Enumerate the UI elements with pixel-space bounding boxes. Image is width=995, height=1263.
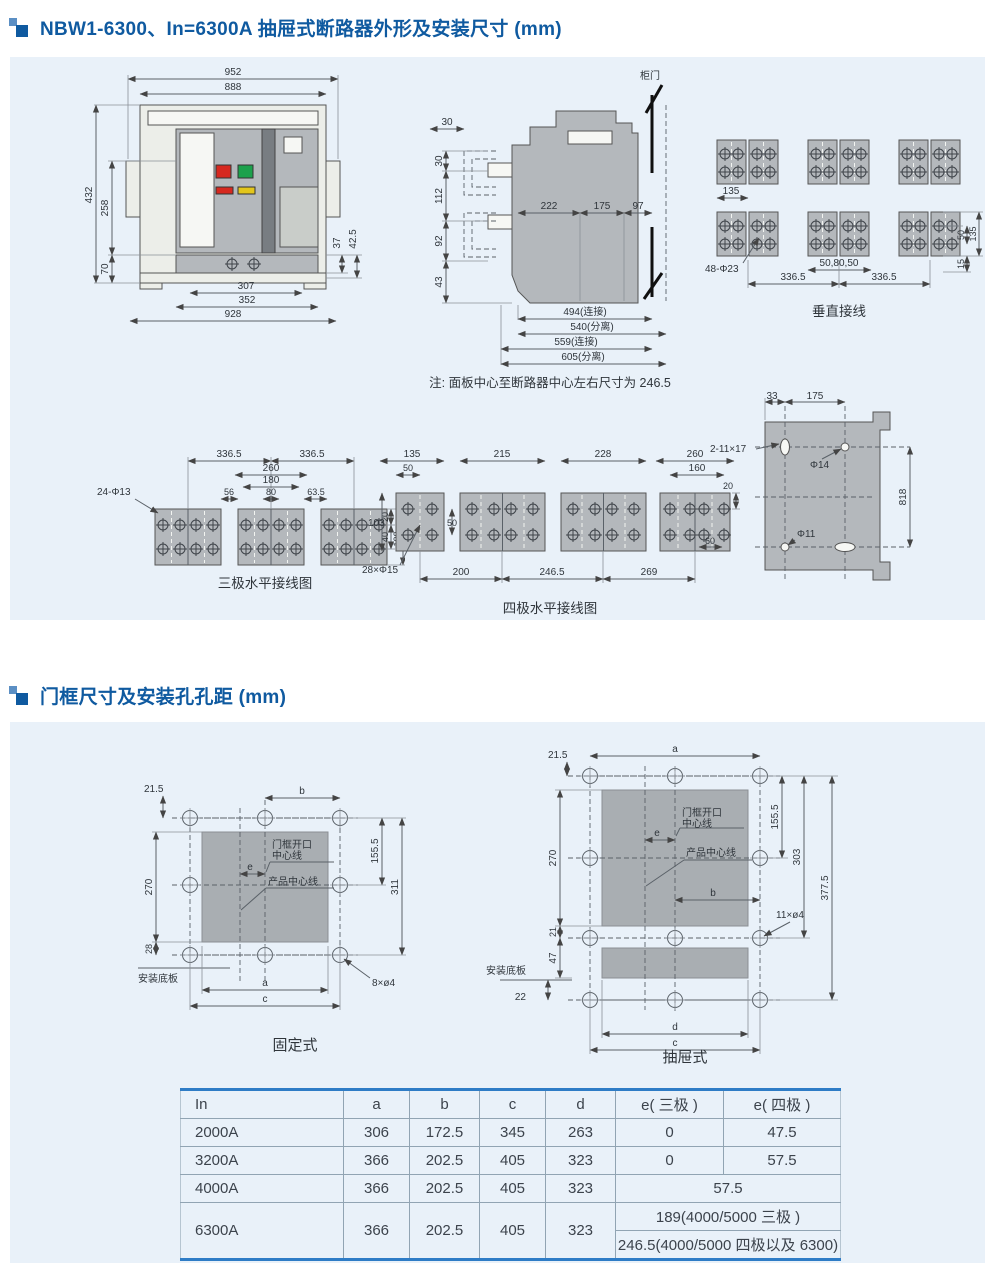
table-row: 4000A 366 202.5 405 323 57.5 (181, 1175, 841, 1203)
dim-label: 80 (266, 487, 276, 497)
table-row: 3200A 366 202.5 405 323 0 57.5 (181, 1147, 841, 1175)
dim-label: 540(分离) (570, 320, 613, 333)
catalog-page: NBW1-6300、In=6300A 抽屉式断路器外形及安装尺寸 (mm) (0, 0, 995, 1263)
dim-label: 228 (595, 449, 612, 460)
cell-b: 202.5 (410, 1175, 480, 1203)
dim-label: 97 (632, 201, 644, 212)
cell-a: 366 (344, 1203, 410, 1260)
dim-label: Φ11 (797, 529, 816, 540)
vertical-wiring-terminals (717, 140, 960, 256)
dim-label: a (262, 978, 268, 989)
cabinet-door-label: 柜门 (640, 69, 660, 82)
dim-label: 135 (404, 449, 421, 460)
fixed-type-drawing: 21.5 b 270 28 155.5 311 e a c 8×ø4 安装底板 … (130, 750, 470, 1060)
dim-label: 70 (100, 263, 111, 275)
dim-label: 175 (594, 201, 611, 212)
cell-a: 306 (344, 1119, 410, 1147)
breaker-front-body (126, 105, 340, 289)
dim-label: 260 (687, 449, 704, 460)
cell-e-four-pole: 246.5(4000/5000 四极以及 6300) (616, 1231, 841, 1260)
dim-label: 260 (263, 463, 280, 474)
dim-label: 888 (225, 82, 242, 93)
dim-label: 215 (494, 449, 511, 460)
door-frame-panel: 21.5 b 270 28 155.5 311 e a c 8×ø4 安装底板 … (10, 722, 985, 1263)
dim-label: b (710, 888, 716, 899)
dim-label: 311 (390, 879, 401, 895)
dim-label: 112 (434, 188, 445, 204)
dim-label: 42.5 (348, 229, 359, 249)
dim-label: 432 (84, 186, 95, 203)
dim-label: 303 (792, 848, 803, 865)
mounting-plate-body (755, 406, 910, 582)
dim-label: 48-Φ23 (705, 264, 739, 275)
dim-label: 270 (144, 878, 155, 895)
section1-title: NBW1-6300、In=6300A 抽屉式断路器外形及安装尺寸 (mm) (40, 14, 562, 41)
dim-label: 2-11×17 (710, 444, 747, 455)
dim-label: 352 (239, 295, 256, 306)
col-header-c: c (480, 1090, 546, 1119)
cell-b: 202.5 (410, 1203, 480, 1260)
dim-label: 50,80,50 (820, 258, 859, 269)
dim-label: 155.5 (370, 838, 381, 863)
dim-label: 336.5 (780, 272, 805, 283)
product-centerline-label: 产品中心线 (686, 846, 736, 859)
dim-label: 50 (956, 230, 966, 240)
dim-label: 21 (548, 927, 558, 937)
dim-label: 494(连接) (563, 305, 606, 318)
dim-label: 28 (144, 944, 154, 954)
dim-label: a (672, 744, 678, 755)
section1-header: NBW1-6300、In=6300A 抽屉式断路器外形及安装尺寸 (mm) (8, 10, 562, 44)
dim-label: e (247, 862, 253, 873)
fixed-type-body (138, 800, 358, 982)
section-bullet-icon (8, 16, 30, 38)
dim-label: 33 (766, 392, 778, 402)
cell-in: 6300A (181, 1203, 344, 1260)
three-pole-wiring-drawing: 336.5 336.5 260 180 56 80 63.5 24-Φ13 20… (95, 447, 405, 592)
dim-label: 11×ø4 (776, 910, 804, 921)
vertical-wiring-drawing: 135 48-Φ23 50,80,50 336.5 336.5 50 135 1… (703, 132, 993, 322)
front-view-drawing: 952 888 432 258 70 37 42.5 307 352 928 (80, 65, 380, 325)
dim-label: 56 (224, 487, 234, 497)
dim-label: 63.5 (307, 487, 325, 497)
cell-a: 366 (344, 1147, 410, 1175)
cell-e-merged: 57.5 (616, 1175, 841, 1203)
dim-label: 200 (453, 567, 470, 578)
dim-label: 30 (441, 117, 453, 128)
door-frame-centerline-label: 中心线 (682, 817, 712, 830)
col-header-e4: e( 四极 ) (724, 1090, 841, 1119)
dim-label: 270 (548, 849, 559, 866)
three-pole-terminals (155, 509, 387, 565)
dim-label: 246.5 (539, 567, 564, 578)
dim-label: c (263, 994, 268, 1005)
dim-label: 21.5 (144, 784, 164, 795)
dim-label: 43 (434, 276, 445, 288)
side-view-drawing: 30 30 112 92 43 222 175 97 494(连接) 540(分… (400, 65, 705, 395)
dim-label: 269 (641, 567, 658, 578)
door-frame-centerline-label: 门框开口 (272, 838, 312, 851)
col-header-in: In (181, 1090, 344, 1119)
dim-label: 30 (434, 155, 445, 167)
drawout-type-body (500, 766, 780, 1014)
cell-b: 202.5 (410, 1147, 480, 1175)
col-header-a: a (344, 1090, 410, 1119)
dim-label: Φ14 (810, 460, 830, 471)
cell-a: 366 (344, 1175, 410, 1203)
dim-label: 22 (515, 992, 527, 1003)
door-frame-centerline-label: 中心线 (272, 849, 302, 862)
drawing-caption: 三极水平接线图 (218, 575, 313, 591)
dim-label: 307 (238, 281, 255, 292)
cell-d: 323 (546, 1175, 616, 1203)
dim-label: 928 (225, 309, 242, 320)
dim-label: d (672, 1022, 678, 1033)
dim-label: 50 (403, 463, 413, 473)
drawing-caption: 固定式 (272, 1037, 317, 1054)
dim-label: 92 (434, 235, 445, 247)
drawout-type-drawing: 21.5 a 270 21 47 22 155.5 303 377.5 e b … (460, 728, 920, 1066)
door-frame-centerline-label: 门框开口 (682, 806, 722, 819)
cell-e-three-pole: 189(4000/5000 三极 ) (616, 1203, 841, 1231)
col-header-b: b (410, 1090, 480, 1119)
cell-e4: 57.5 (724, 1147, 841, 1175)
table-header-row: In a b c d e( 三极 ) e( 四极 ) (181, 1090, 841, 1119)
cell-e3: 0 (616, 1147, 724, 1175)
dim-label: 135 (723, 186, 740, 197)
dim-label: 50 (447, 518, 457, 528)
outline-dimensions-panel: 952 888 432 258 70 37 42.5 307 352 928 (10, 57, 985, 620)
cell-in: 4000A (181, 1175, 344, 1203)
section2-title: 门框尺寸及安装孔孔距 (mm) (40, 682, 286, 709)
dim-label: 605(分离) (561, 350, 604, 363)
table-row: 2000A 306 172.5 345 263 0 47.5 (181, 1119, 841, 1147)
cell-in: 3200A (181, 1147, 344, 1175)
side-view-note: 注: 面板中心至断路器中心左右尺寸为 246.5 (429, 375, 671, 390)
cell-c: 405 (480, 1203, 546, 1260)
product-centerline-label: 产品中心线 (268, 875, 318, 888)
dim-label: 21.5 (548, 750, 568, 761)
dim-label: 222 (541, 201, 558, 212)
cell-c: 405 (480, 1147, 546, 1175)
cell-d: 323 (546, 1203, 616, 1260)
dim-label: 24-Φ13 (97, 487, 131, 498)
cell-d: 263 (546, 1119, 616, 1147)
dim-label: b (299, 786, 305, 797)
drawing-caption: 垂直接线 (812, 303, 866, 319)
dim-label: 952 (225, 67, 242, 78)
cabinet-door-lines (644, 85, 666, 301)
col-header-d: d (546, 1090, 616, 1119)
col-header-e3: e( 三极 ) (616, 1090, 724, 1119)
section-bullet-icon (8, 684, 30, 706)
dim-label: e (654, 828, 660, 839)
cell-in: 2000A (181, 1119, 344, 1147)
dim-label: c (673, 1038, 678, 1049)
dim-label: 336.5 (871, 272, 896, 283)
dim-label: 336.5 (299, 449, 324, 460)
four-pole-wiring-drawing: 135 50 215 228 260 160 103 50 28×Φ15 200… (360, 447, 740, 617)
cell-c: 405 (480, 1175, 546, 1203)
dim-label: 15 (956, 259, 966, 269)
dim-label: 135 (968, 226, 978, 241)
cell-e4: 47.5 (724, 1119, 841, 1147)
cell-d: 323 (546, 1147, 616, 1175)
mounting-base-label: 安装底板 (138, 972, 178, 985)
dim-label: 8×ø4 (372, 978, 396, 989)
cell-b: 172.5 (410, 1119, 480, 1147)
drawing-caption: 抽屉式 (662, 1049, 707, 1066)
dim-label: 47 (548, 952, 559, 964)
mounting-base-label: 安装底板 (486, 964, 526, 977)
dimension-table: In a b c d e( 三极 ) e( 四极 ) 2000A 306 172… (180, 1088, 841, 1261)
dim-label: 28×Φ15 (362, 565, 399, 576)
cell-e3: 0 (616, 1119, 724, 1147)
dim-label: 559(连接) (554, 335, 597, 348)
mounting-plate-drawing: 33 175 2-11×17 Φ14 Φ11 818 (710, 392, 995, 587)
dim-label: 175 (807, 392, 824, 402)
dim-label: 258 (100, 199, 111, 216)
dim-label: 160 (689, 463, 706, 474)
dim-label: 155.5 (770, 804, 781, 829)
dim-label: 180 (263, 475, 280, 486)
dim-label: 37 (332, 237, 343, 249)
table-row: 6300A 366 202.5 405 323 189(4000/5000 三极… (181, 1203, 841, 1231)
drawing-caption: 四极水平接线图 (503, 600, 598, 616)
dim-label: 818 (898, 488, 909, 505)
dim-label: 336.5 (216, 449, 241, 460)
section2-header: 门框尺寸及安装孔孔距 (mm) (8, 678, 286, 712)
dim-label: 377.5 (820, 875, 831, 900)
dim-label: 103 (368, 518, 385, 529)
cell-c: 345 (480, 1119, 546, 1147)
